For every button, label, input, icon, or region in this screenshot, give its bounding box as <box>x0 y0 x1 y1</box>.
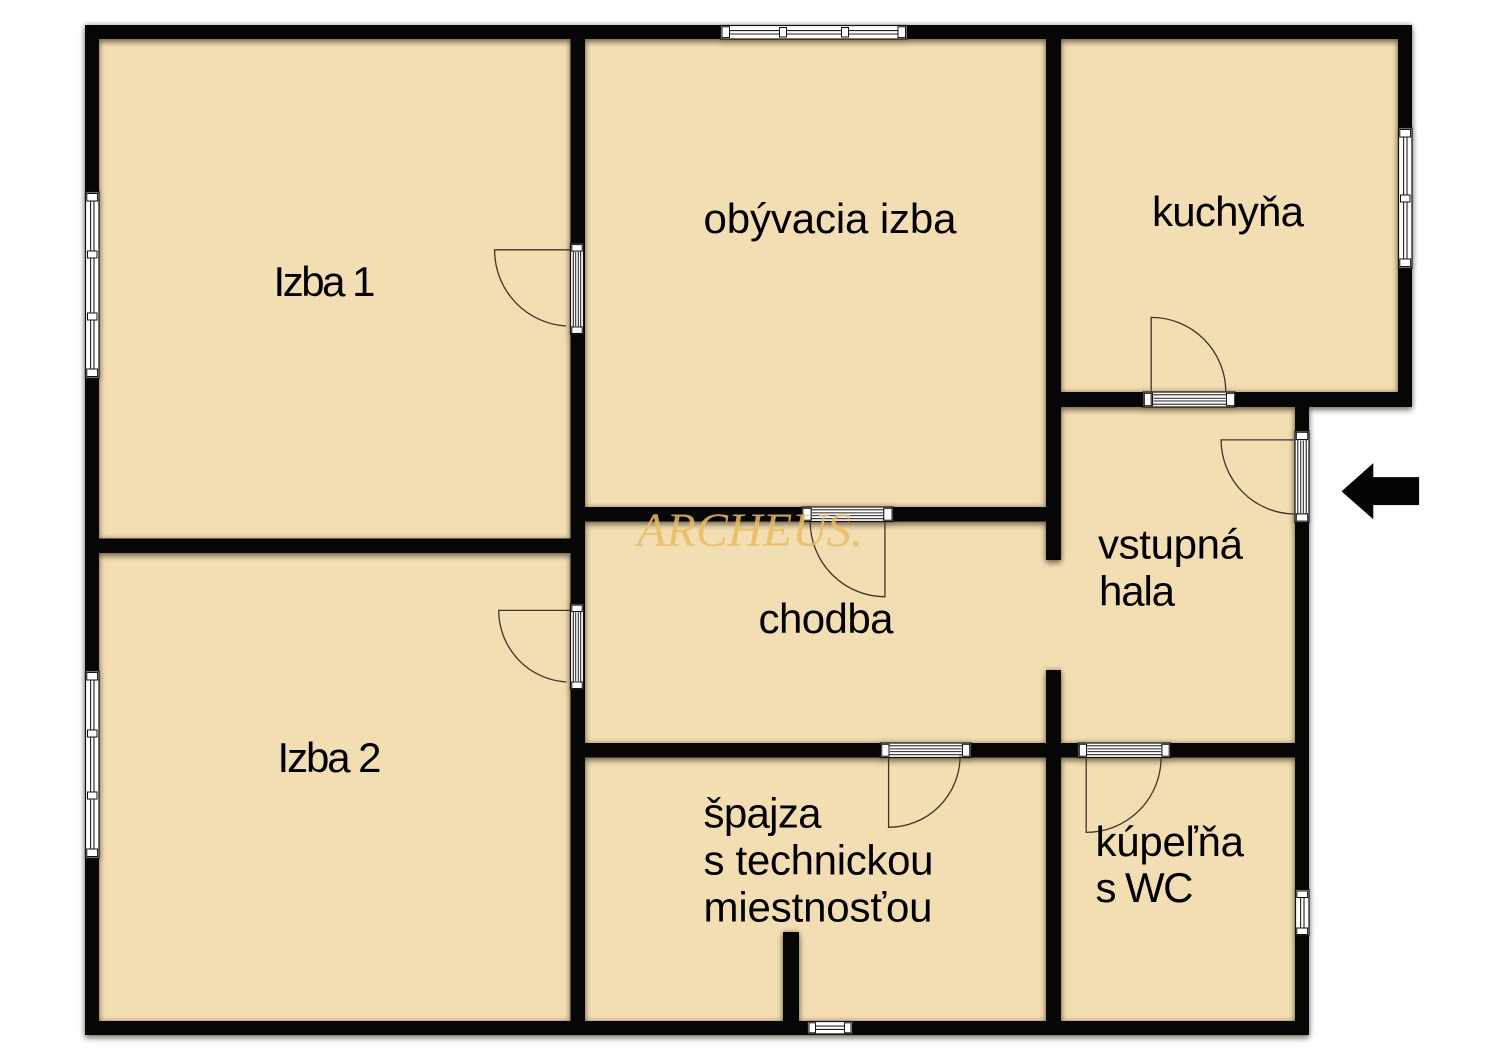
svg-text:s WC: s WC <box>1096 864 1194 911</box>
svg-text:hala: hala <box>1099 568 1176 615</box>
svg-text:kuchyňa: kuchyňa <box>1152 188 1305 235</box>
svg-text:Izba 1: Izba 1 <box>274 258 376 305</box>
svg-text:vstupná: vstupná <box>1098 521 1244 568</box>
svg-text:špajza: špajza <box>704 790 823 837</box>
svg-text:Izba 2: Izba 2 <box>278 734 382 781</box>
svg-text:obývacia izba: obývacia izba <box>704 195 958 242</box>
svg-text:chodba: chodba <box>759 595 895 642</box>
svg-text:miestnosťou: miestnosťou <box>704 884 933 931</box>
svg-text:kúpeľňa: kúpeľňa <box>1096 818 1245 865</box>
svg-text:s technickou: s technickou <box>704 837 934 884</box>
svg-text:ARCHEUS.: ARCHEUS. <box>634 504 863 557</box>
